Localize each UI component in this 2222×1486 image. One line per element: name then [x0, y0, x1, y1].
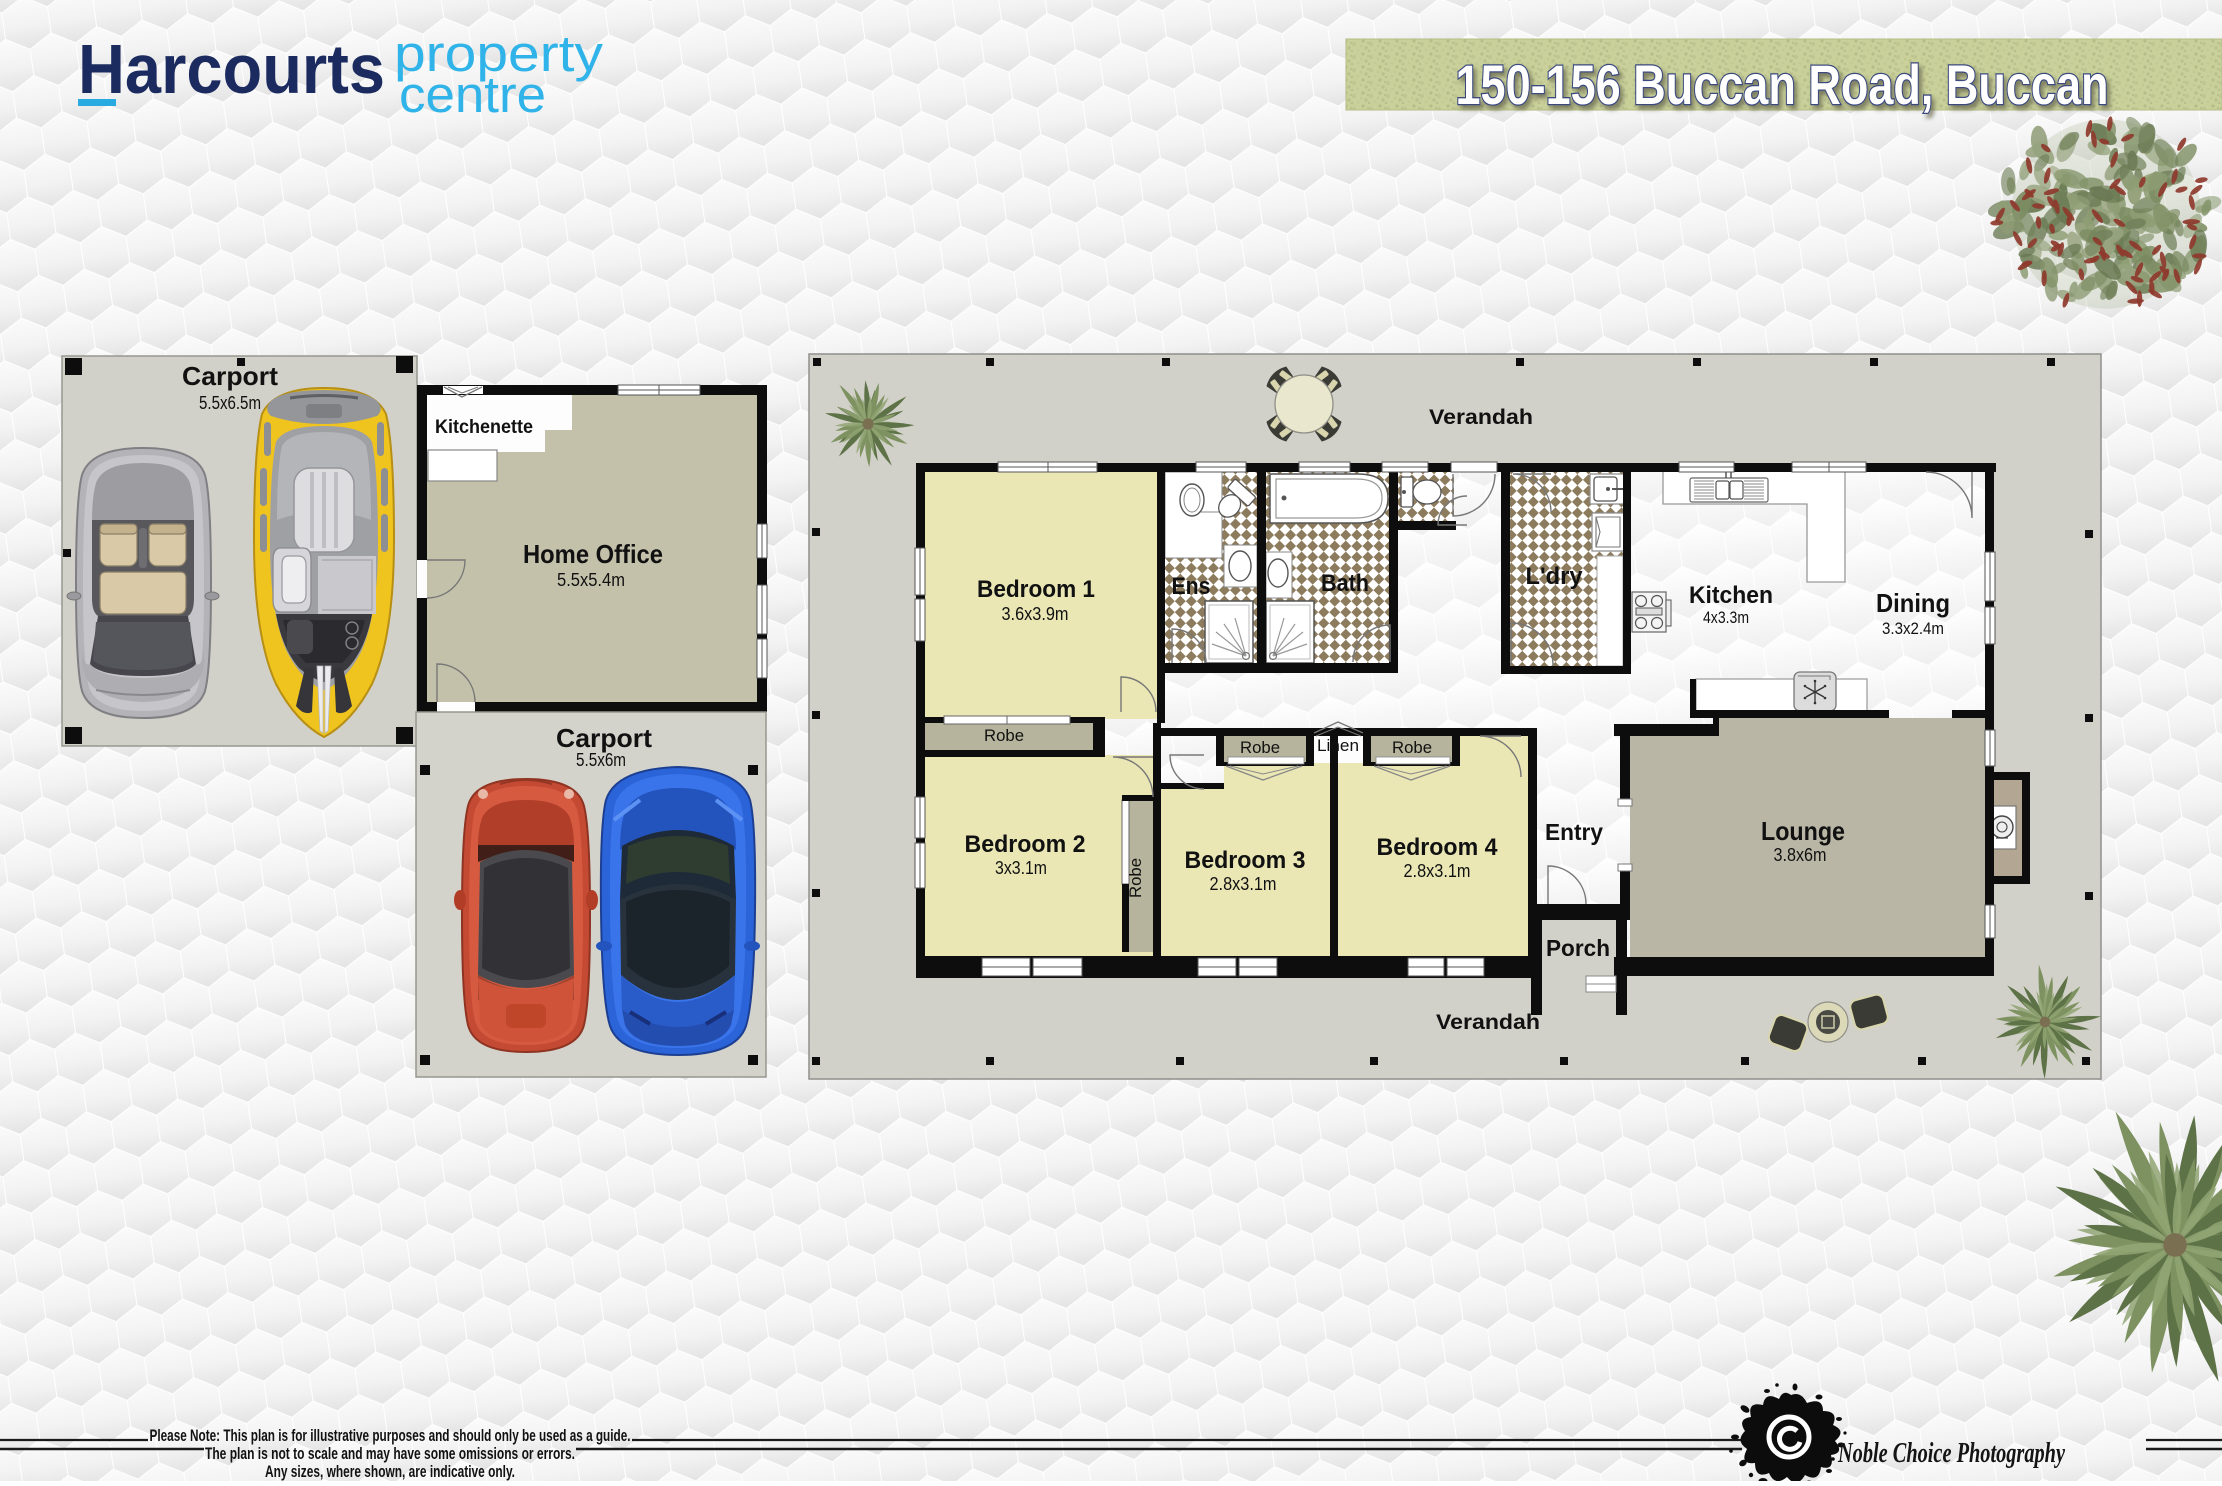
svg-text:Bedroom 3: Bedroom 3: [1185, 847, 1306, 874]
svg-text:3.8x6m: 3.8x6m: [1774, 845, 1827, 865]
svg-text:Carport: Carport: [556, 723, 652, 753]
svg-text:5.5x6.5m: 5.5x6.5m: [199, 393, 261, 413]
svg-text:Ens: Ens: [1172, 573, 1211, 600]
svg-text:Kitchenette: Kitchenette: [435, 417, 533, 438]
svg-text:Any sizes, where shown, are in: Any sizes, where shown, are indicative o…: [265, 1462, 515, 1481]
svg-text:5.5x5.4m: 5.5x5.4m: [557, 570, 625, 590]
svg-text:Verandah: Verandah: [1436, 1011, 1540, 1034]
svg-text:Bedroom 4: Bedroom 4: [1377, 834, 1499, 861]
svg-text:Bedroom 2: Bedroom 2: [965, 831, 1086, 858]
svg-text:2.8x3.1m: 2.8x3.1m: [1404, 861, 1471, 881]
svg-text:150-156 Buccan Road, Buccan: 150-156 Buccan Road, Buccan: [1456, 53, 2109, 116]
svg-text:centre: centre: [399, 66, 546, 123]
svg-text:3.3x2.4m: 3.3x2.4m: [1882, 619, 1944, 638]
svg-text:Robe: Robe: [1392, 738, 1432, 757]
svg-text:Harcourts: Harcourts: [78, 30, 385, 108]
svg-text:Linen: Linen: [1317, 736, 1359, 755]
svg-text:3.6x3.9m: 3.6x3.9m: [1002, 604, 1069, 624]
svg-text:Robe: Robe: [984, 726, 1024, 745]
svg-text:5.5x6m: 5.5x6m: [576, 750, 626, 770]
svg-text:Home Office: Home Office: [523, 539, 663, 569]
svg-text:The plan is not to scale and m: The plan is not to scale and may have so…: [205, 1444, 575, 1463]
svg-text:Noble Choice Photography: Noble Choice Photography: [1837, 1438, 2065, 1469]
svg-text:Dining: Dining: [1876, 588, 1950, 618]
svg-text:Bath: Bath: [1321, 570, 1369, 597]
svg-text:L'dry: L'dry: [1526, 563, 1584, 590]
svg-text:Porch: Porch: [1546, 935, 1610, 961]
svg-text:Please Note: This plan is for: Please Note: This plan is for illustrati…: [150, 1426, 631, 1445]
svg-text:Bedroom 1: Bedroom 1: [977, 576, 1095, 603]
svg-text:Robe: Robe: [1240, 738, 1280, 757]
svg-text:Carport: Carport: [182, 361, 278, 391]
svg-text:Entry: Entry: [1545, 819, 1603, 845]
svg-text:4x3.3m: 4x3.3m: [1703, 608, 1749, 627]
svg-text:Robe: Robe: [1126, 858, 1145, 898]
svg-text:Lounge: Lounge: [1761, 816, 1845, 846]
svg-text:2.8x3.1m: 2.8x3.1m: [1210, 874, 1277, 894]
svg-text:Verandah: Verandah: [1429, 406, 1533, 429]
svg-text:Kitchen: Kitchen: [1689, 582, 1773, 609]
svg-text:3x3.1m: 3x3.1m: [995, 858, 1047, 878]
